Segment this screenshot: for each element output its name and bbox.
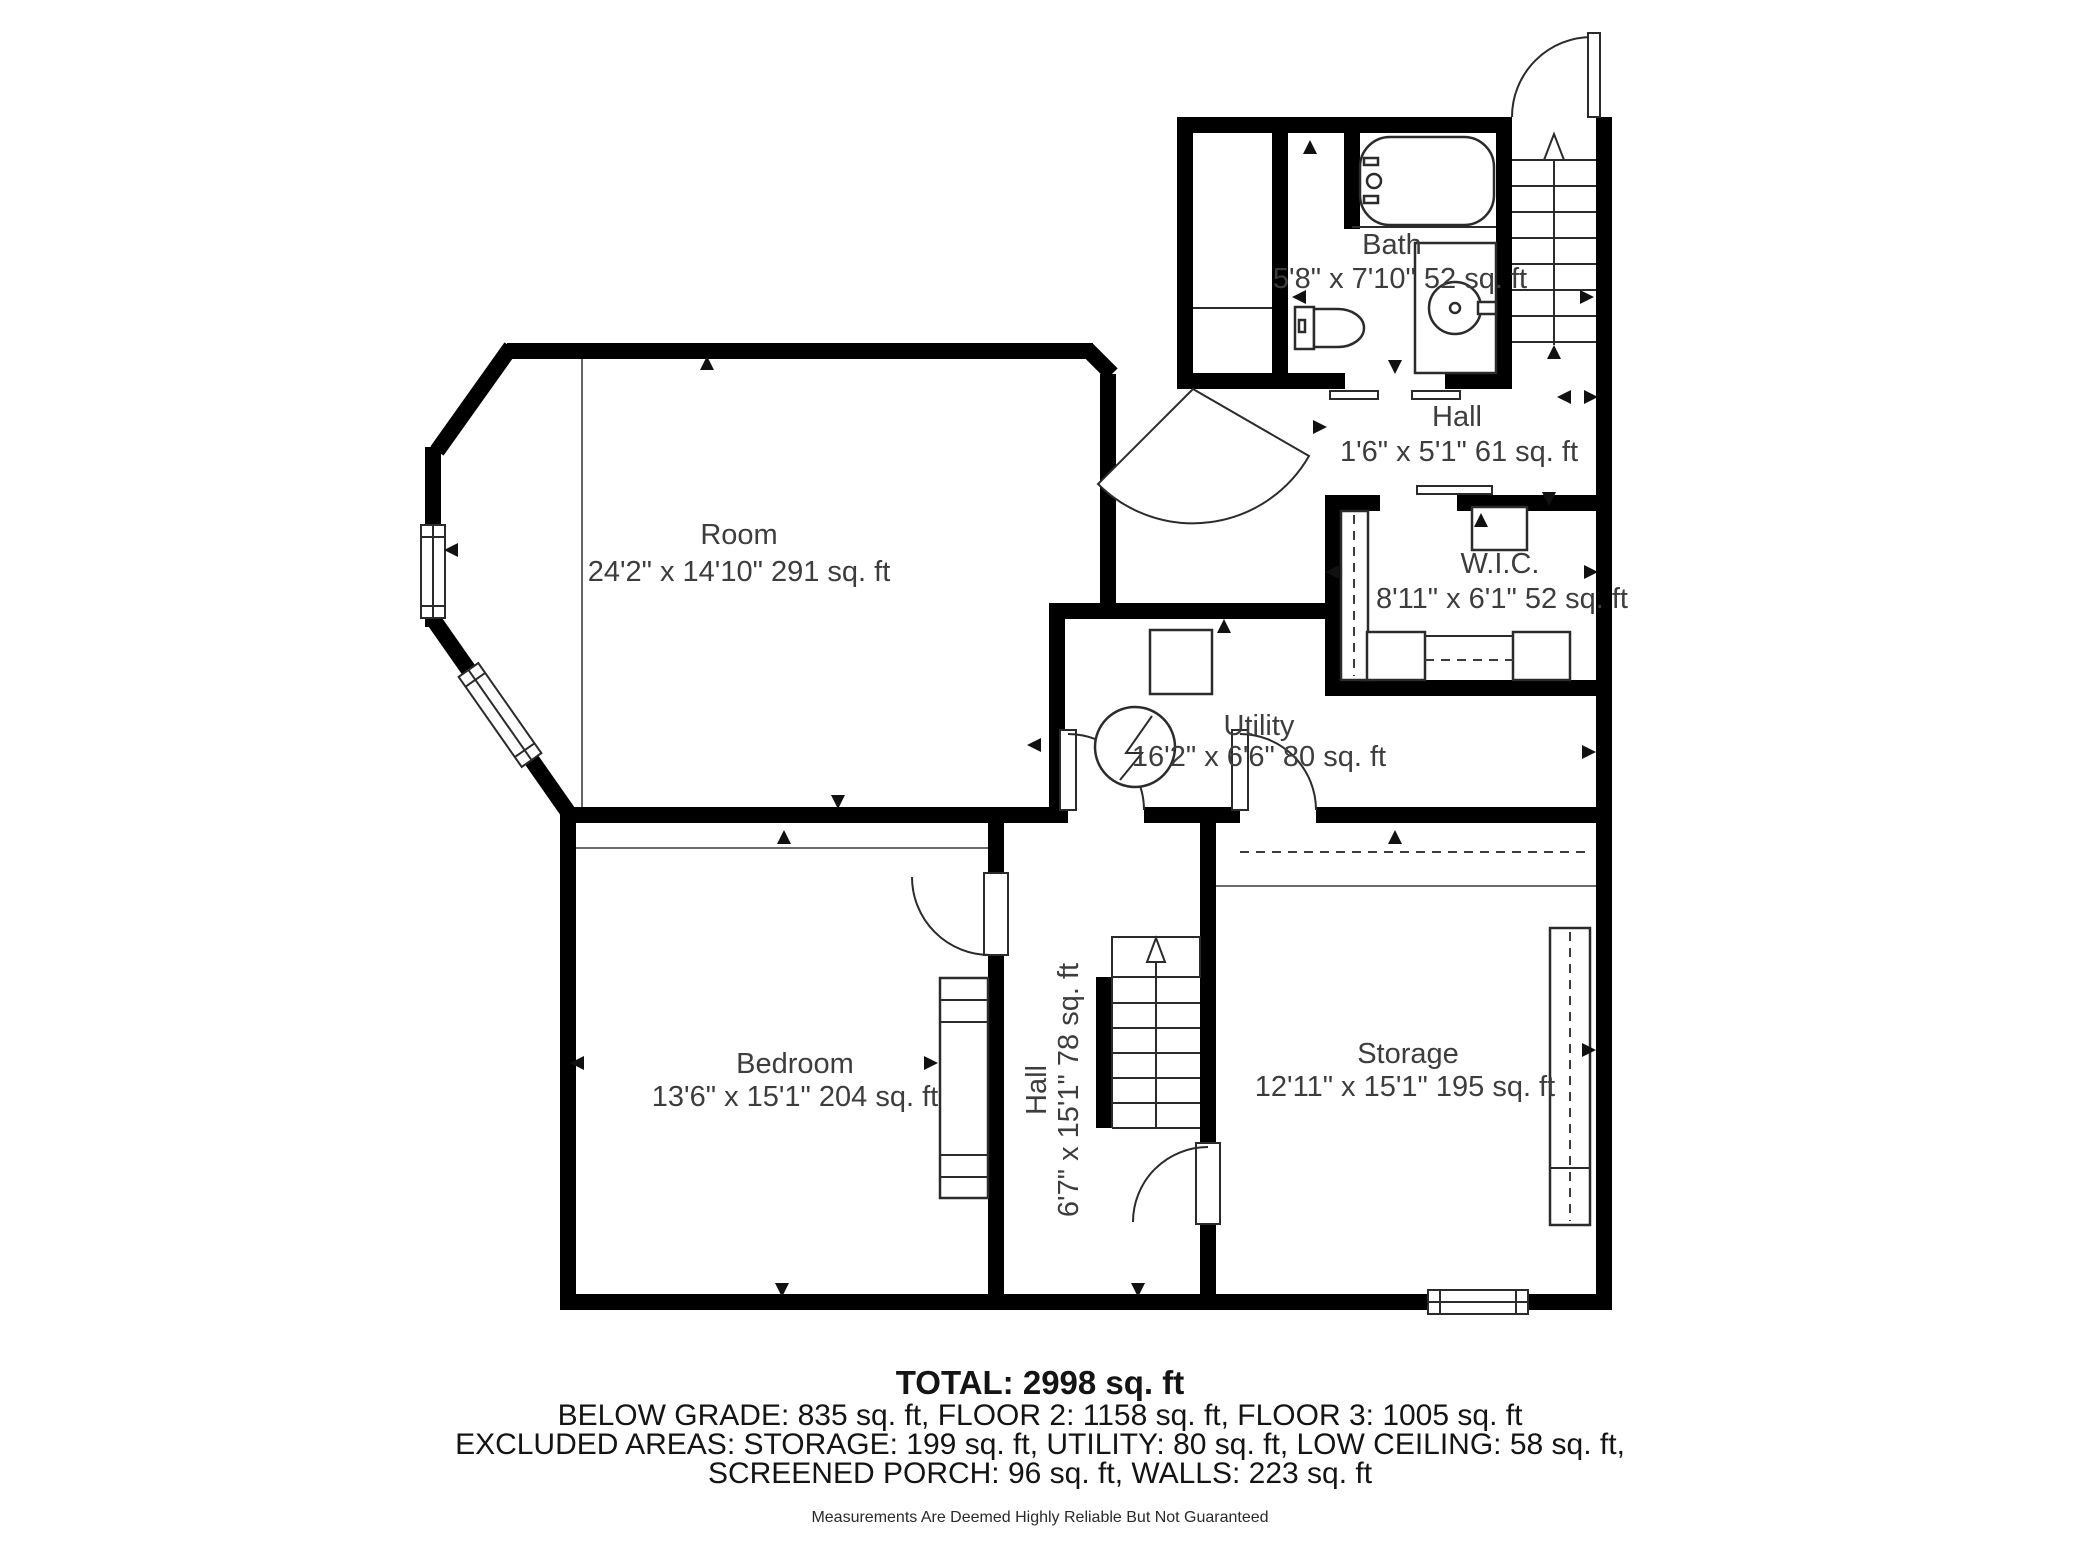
toilet (1295, 307, 1364, 349)
room-label-storage: Storage (1357, 1038, 1459, 1070)
wic-pocket-door (1417, 486, 1492, 494)
bath-pocket-door (1330, 391, 1460, 399)
room-label-bedroom: Bedroom (736, 1048, 854, 1080)
room-dims-utility: 16'2" x 6'6" 80 sq. ft (1132, 741, 1386, 773)
room-dims-hall-bottom: 6'7" x 15'1" 78 sq. ft (1053, 963, 1085, 1217)
storage-door (1133, 1143, 1220, 1224)
room-dims-wic: 8'11" x 6'1" 52 sq. ft (1376, 583, 1628, 615)
entry-door (1512, 33, 1600, 117)
utility-appliance (1150, 630, 1212, 694)
bay-window-angled (459, 663, 542, 767)
storage-closet-shelving (1550, 928, 1590, 1225)
staircase-upper (1512, 134, 1596, 345)
stairs-up-arrow (1544, 134, 1564, 160)
bedroom-closet-shelving (940, 978, 988, 1198)
room-label-room: Room (700, 519, 777, 551)
room-label-hall-top: Hall (1432, 401, 1482, 433)
room-dims-room: 24'2" x 14'10" 291 sq. ft (588, 556, 891, 588)
room-dims-hall-top: 1'6" x 5'1" 61 sq. ft (1340, 436, 1578, 468)
bedroom-door (912, 873, 1008, 955)
room-label-utility: Utility (1224, 710, 1295, 742)
room-dims-storage: 12'11" x 15'1" 195 sq. ft (1255, 1071, 1555, 1103)
summary-excluded-2: SCREENED PORCH: 96 sq. ft, WALLS: 223 sq… (708, 1457, 1373, 1490)
room-label-wic: W.I.C. (1461, 548, 1540, 580)
summary-disclaimer: Measurements Are Deemed Highly Reliable … (811, 1509, 1268, 1526)
corner-fan-door (1098, 389, 1309, 523)
room-dims-bath: 5'8" x 7'10" 52 sq. ft (1273, 263, 1527, 295)
room-label-hall-bottom: Hall (1021, 1065, 1053, 1115)
floor-plan-page: Room 24'2" x 14'10" 291 sq. ft Bath 5'8"… (0, 0, 2080, 1560)
bathtub (1360, 137, 1494, 225)
storage-window (1428, 1290, 1528, 1314)
staircase-basement (1112, 937, 1200, 1128)
floor-plan: Room 24'2" x 14'10" 291 sq. ft Bath 5'8"… (0, 0, 2080, 1560)
summary-total: TOTAL: 2998 sq. ft (896, 1364, 1185, 1401)
room-label-bath: Bath (1362, 229, 1422, 261)
bay-window-left (421, 525, 445, 618)
room-dims-bedroom: 13'6" x 15'1" 204 sq. ft (652, 1081, 938, 1113)
stairs-up-arrow (1147, 938, 1165, 962)
